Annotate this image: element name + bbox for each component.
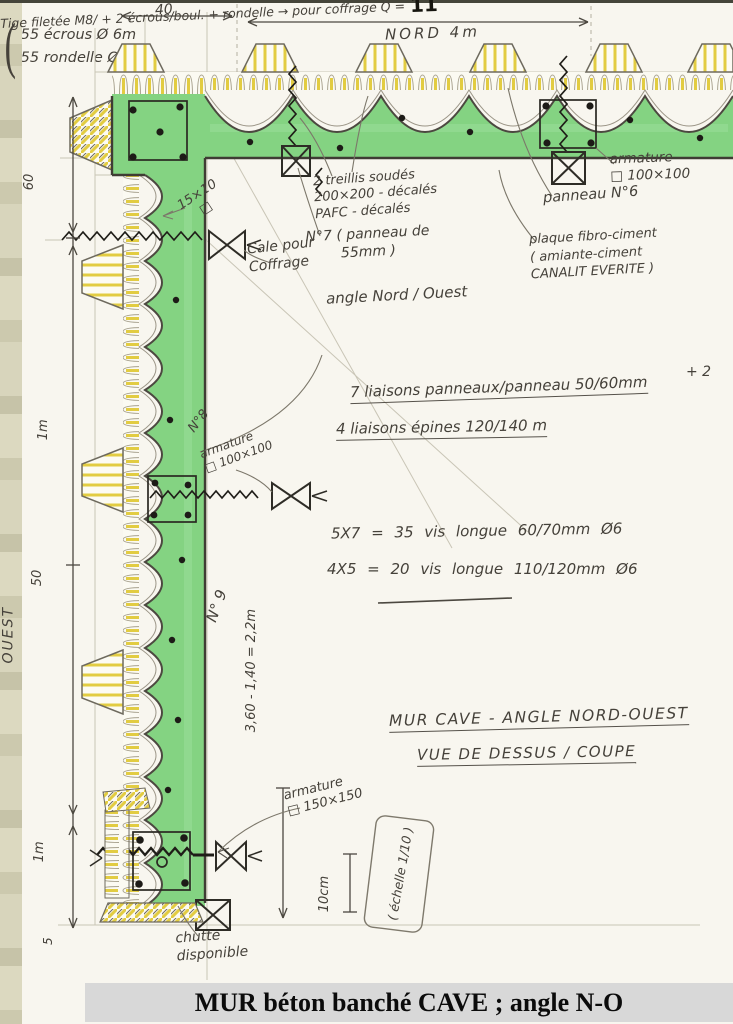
left-form-stiffeners xyxy=(70,100,123,714)
top-form-stiffeners xyxy=(108,44,733,72)
dim-height-calc: 3,60 - 1,40 = 2,2m xyxy=(244,609,260,732)
brace: ( xyxy=(5,19,16,75)
note-plaque-fibro-ciment: plaque fibro-ciment ( amiante-ciment CAN… xyxy=(529,225,659,284)
dim-left-50: 50 xyxy=(30,570,46,587)
rebar-dots xyxy=(129,102,703,887)
calc-vis-110-120: 4X5 = 20 vis longue 110/120mm Ø6 xyxy=(327,560,637,579)
note-plus-2: + 2 xyxy=(686,364,711,382)
dim-bottom-5: 5 xyxy=(41,937,56,945)
label-ouest: OUEST xyxy=(1,606,19,664)
note-4-liaisons: 4 liaisons épines 120/140 m xyxy=(336,416,547,440)
note-treillis-soudes: 2 treillis soudés 200×200 - décalés PAFC… xyxy=(312,166,438,223)
heading-vue-dessus: VUE DE DESSUS / COUPE xyxy=(417,742,637,767)
title-banner: MUR béton banché CAVE ; angle N-O xyxy=(85,983,733,1022)
scanned-sketch-page: 40 NORD 4m 60 1m 50 OUEST 1m 5 3,60 - 1,… xyxy=(0,0,733,1024)
dim-left-60: 60 xyxy=(22,174,38,191)
dim-nord-4m: NORD 4m xyxy=(385,22,481,44)
page-title: MUR béton banché CAVE ; angle N-O xyxy=(195,988,624,1018)
note-panneau-n7: N°7 ( panneau de 55mm ) xyxy=(305,223,431,264)
dim-left-1m: 1m xyxy=(36,419,52,440)
dim-10cm: 10cm xyxy=(317,876,333,912)
dim-bottom-1m: 1m xyxy=(32,841,48,862)
note-chutte-disponible: chutte disponible xyxy=(175,926,249,966)
note-armature-100x100-top: armature □ 100×100 xyxy=(609,149,690,186)
tige-quantity: 11 xyxy=(409,0,438,17)
